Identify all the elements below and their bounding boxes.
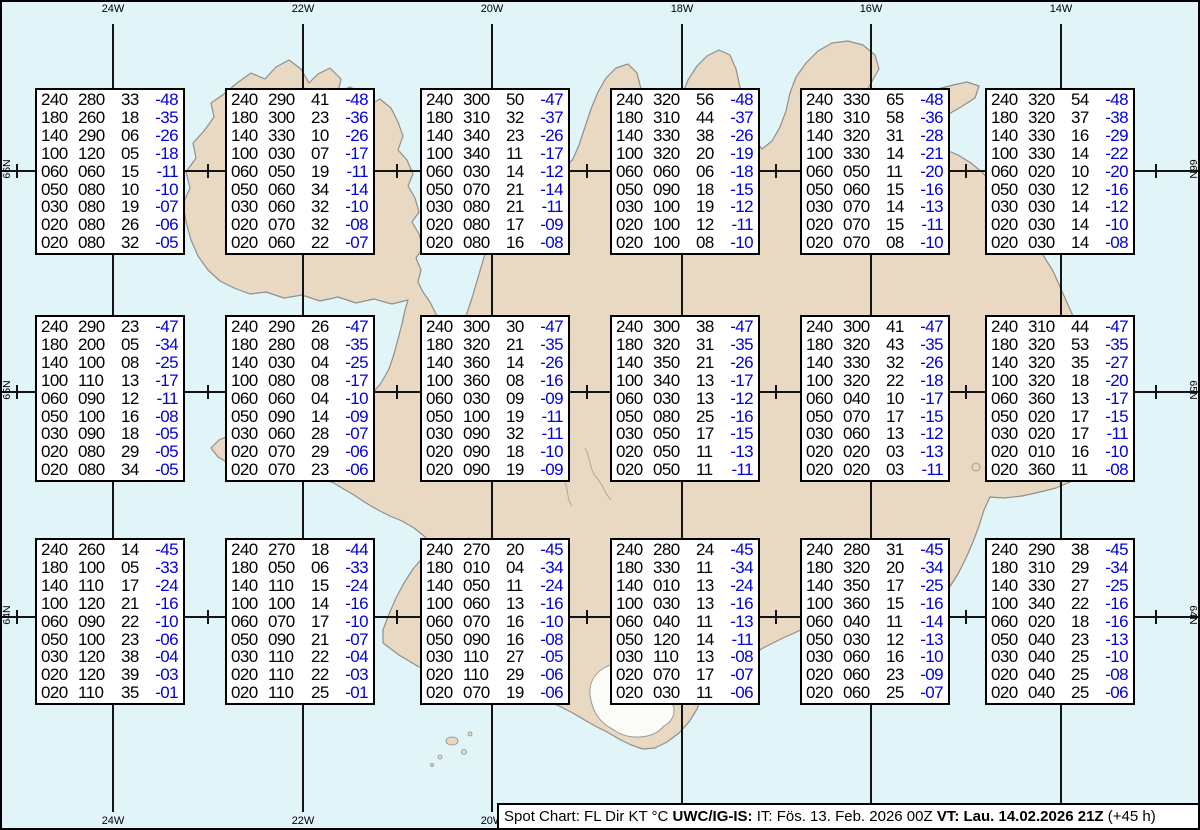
fl-value: 030 [616, 648, 653, 666]
dir-value: 300 [653, 318, 696, 336]
temp-value: -10 [151, 613, 183, 631]
kt-value: 11 [696, 613, 726, 631]
fl-value: 100 [991, 595, 1028, 613]
spot-data-row: 10010014-16 [231, 595, 373, 613]
temp-value: -25 [341, 354, 373, 372]
kt-value: 22 [311, 666, 341, 684]
spot-data-row: 05010023-06 [41, 631, 183, 649]
fl-value: 050 [231, 181, 268, 199]
spot-data-row: 06007016-10 [426, 613, 568, 631]
temp-value: -34 [916, 559, 948, 577]
spot-data-row: 02002003-13 [806, 443, 948, 461]
dir-value: 080 [78, 198, 121, 216]
fl-value: 100 [41, 145, 78, 163]
spot-data-row: 06006015-11 [41, 163, 183, 181]
fl-value: 180 [231, 336, 268, 354]
fl-value: 020 [616, 443, 653, 461]
dir-value: 100 [653, 234, 696, 252]
kt-value: 31 [886, 541, 916, 559]
temp-value: -16 [536, 372, 568, 390]
temp-value: -07 [726, 666, 758, 684]
temp-value: -09 [536, 216, 568, 234]
temp-value: -08 [1101, 234, 1133, 252]
kt-value: 05 [121, 559, 151, 577]
fl-value: 050 [806, 631, 843, 649]
temp-value: -08 [1101, 461, 1133, 479]
fl-value: 100 [991, 372, 1028, 390]
kt-value: 05 [121, 336, 151, 354]
temp-value: -11 [726, 631, 758, 649]
kt-value: 56 [696, 91, 726, 109]
dir-value: 090 [463, 443, 506, 461]
temp-value: -11 [151, 390, 183, 408]
dir-value: 100 [78, 354, 121, 372]
spot-data-row: 14036014-26 [426, 354, 568, 372]
kt-value: 14 [506, 163, 536, 181]
fl-value: 140 [806, 354, 843, 372]
fl-value: 020 [41, 216, 78, 234]
spot-data-row: 02011035-01 [41, 684, 183, 702]
fl-value: 020 [426, 216, 463, 234]
fl-value: 060 [991, 390, 1028, 408]
fl-value: 020 [806, 666, 843, 684]
dir-value: 100 [463, 408, 506, 426]
dir-value: 320 [1028, 109, 1071, 127]
kt-value: 21 [121, 595, 151, 613]
dir-value: 090 [268, 408, 311, 426]
latitude-label-right: 66N [1187, 156, 1199, 182]
fl-value: 050 [231, 408, 268, 426]
kt-value: 18 [1071, 372, 1101, 390]
fl-value: 240 [806, 91, 843, 109]
fl-value: 020 [231, 684, 268, 702]
spot-data-row: 02011022-03 [231, 666, 373, 684]
spot-data-row: 03006028-07 [231, 425, 373, 443]
temp-value: -11 [151, 163, 183, 181]
fl-value: 020 [991, 216, 1028, 234]
temp-value: -12 [1101, 198, 1133, 216]
kt-value: 29 [311, 443, 341, 461]
spot-data-row: 14003004-25 [231, 354, 373, 372]
dir-value: 020 [1028, 163, 1071, 181]
dir-value: 290 [78, 127, 121, 145]
temp-value: -10 [341, 198, 373, 216]
fl-value: 020 [41, 684, 78, 702]
temp-value: -08 [536, 631, 568, 649]
temp-value: -35 [151, 109, 183, 127]
spot-box: 24032054-4818032037-3814033016-291003301… [985, 88, 1135, 255]
spot-data-row: 03008021-11 [426, 198, 568, 216]
spot-data-row: 02005011-11 [616, 461, 758, 479]
fl-value: 020 [41, 666, 78, 684]
dir-value: 330 [1028, 145, 1071, 163]
kt-value: 15 [121, 163, 151, 181]
temp-value: -33 [341, 559, 373, 577]
spot-data-row: 18031032-37 [426, 109, 568, 127]
fl-value: 050 [991, 408, 1028, 426]
fl-value: 100 [426, 595, 463, 613]
spot-box: 24028031-4518032020-3414035017-251003601… [800, 538, 950, 705]
kt-value: 11 [1071, 461, 1101, 479]
spot-data-row: 02006023-09 [806, 666, 948, 684]
dir-value: 340 [463, 127, 506, 145]
spot-data-row: 18032037-38 [991, 109, 1133, 127]
spot-box: 24031044-4718032053-3514032035-271003201… [985, 315, 1135, 482]
temp-value: -13 [726, 443, 758, 461]
longitude-label-bottom: 24W [97, 815, 129, 827]
temp-value: -26 [151, 127, 183, 145]
temp-value: -06 [536, 666, 568, 684]
fl-value: 030 [231, 648, 268, 666]
spot-data-row: 18032021-35 [426, 336, 568, 354]
spot-data-row: 10036015-16 [806, 595, 948, 613]
temp-value: -20 [1101, 372, 1133, 390]
dir-value: 040 [1028, 666, 1071, 684]
dir-value: 110 [78, 684, 121, 702]
kt-value: 10 [1071, 163, 1101, 181]
fl-value: 020 [991, 684, 1028, 702]
dir-value: 320 [843, 372, 886, 390]
spot-data-row: 14033038-26 [616, 127, 758, 145]
latitude-label-right: 65N [1187, 377, 1199, 403]
spot-data-row: 14010008-25 [41, 354, 183, 372]
kt-value: 16 [506, 234, 536, 252]
kt-value: 25 [1071, 684, 1101, 702]
fl-value: 100 [41, 372, 78, 390]
temp-value: -17 [341, 372, 373, 390]
temp-value: -44 [341, 541, 373, 559]
dir-value: 060 [268, 181, 311, 199]
kt-value: 19 [506, 461, 536, 479]
temp-value: -11 [1101, 425, 1133, 443]
temp-value: -24 [726, 577, 758, 595]
spot-data-row: 24028031-45 [806, 541, 948, 559]
spot-data-row: 05006034-14 [231, 181, 373, 199]
fl-value: 240 [41, 318, 78, 336]
temp-value: -48 [916, 91, 948, 109]
temp-value: -09 [341, 408, 373, 426]
temp-value: -15 [916, 408, 948, 426]
dir-value: 020 [1028, 613, 1071, 631]
spot-data-row: 06005019-11 [231, 163, 373, 181]
dir-value: 090 [463, 461, 506, 479]
temp-value: -08 [536, 234, 568, 252]
fl-value: 030 [616, 425, 653, 443]
dir-value: 040 [843, 390, 886, 408]
fl-value: 050 [806, 181, 843, 199]
spot-data-row: 02003011-06 [616, 684, 758, 702]
kt-value: 22 [311, 234, 341, 252]
spot-data-row: 14033032-26 [806, 354, 948, 372]
kt-value: 18 [311, 541, 341, 559]
spot-data-row: 02009018-10 [426, 443, 568, 461]
kt-value: 07 [311, 145, 341, 163]
spot-data-row: 05004023-13 [991, 631, 1133, 649]
dir-value: 290 [78, 318, 121, 336]
spot-data-row: 02009019-09 [426, 461, 568, 479]
spot-data-row: 06002010-20 [991, 163, 1133, 181]
temp-value: -04 [341, 648, 373, 666]
fl-value: 060 [231, 163, 268, 181]
fl-value: 020 [41, 234, 78, 252]
temp-value: -11 [726, 461, 758, 479]
spot-data-row: 06003013-12 [616, 390, 758, 408]
spot-data-row: 02008026-06 [41, 216, 183, 234]
fl-value: 020 [616, 216, 653, 234]
temp-value: -37 [726, 109, 758, 127]
kt-value: 25 [1071, 648, 1101, 666]
temp-value: -08 [151, 408, 183, 426]
kt-value: 11 [506, 145, 536, 163]
dir-value: 050 [653, 443, 696, 461]
dir-value: 060 [843, 425, 886, 443]
fl-value: 060 [806, 390, 843, 408]
fl-value: 180 [426, 336, 463, 354]
spot-data-row: 18028008-35 [231, 336, 373, 354]
spot-data-row: 03005017-15 [616, 425, 758, 443]
fl-value: 050 [41, 631, 78, 649]
dir-value: 110 [268, 648, 311, 666]
fl-value: 140 [616, 127, 653, 145]
dir-value: 340 [463, 145, 506, 163]
kt-value: 20 [506, 541, 536, 559]
dir-value: 270 [268, 541, 311, 559]
spot-data-row: 03009032-11 [426, 425, 568, 443]
temp-value: -15 [726, 181, 758, 199]
temp-value: -10 [1101, 443, 1133, 461]
kt-value: 11 [886, 163, 916, 181]
dir-value: 330 [653, 127, 696, 145]
fl-value: 050 [231, 631, 268, 649]
fl-value: 180 [991, 109, 1028, 127]
dir-value: 120 [78, 595, 121, 613]
kt-value: 11 [886, 613, 916, 631]
dir-value: 300 [268, 109, 311, 127]
spot-data-row: 10003007-17 [231, 145, 373, 163]
temp-value: -24 [341, 577, 373, 595]
kt-value: 20 [696, 145, 726, 163]
spot-data-row: 03006016-10 [806, 648, 948, 666]
fl-value: 020 [806, 461, 843, 479]
fl-value: 060 [991, 163, 1028, 181]
dir-value: 070 [463, 613, 506, 631]
dir-value: 050 [463, 577, 506, 595]
dir-value: 110 [268, 684, 311, 702]
dir-value: 120 [78, 145, 121, 163]
spot-data-row: 02012039-03 [41, 666, 183, 684]
spot-data-row: 24027018-44 [231, 541, 373, 559]
dir-value: 310 [1028, 559, 1071, 577]
fl-value: 100 [231, 372, 268, 390]
dir-value: 030 [1028, 216, 1071, 234]
spot-data-row: 24027020-45 [426, 541, 568, 559]
latitude-label-left: 64N [1, 602, 13, 628]
fl-value: 020 [806, 234, 843, 252]
temp-value: -13 [916, 443, 948, 461]
temp-value: -27 [1101, 354, 1133, 372]
kt-value: 39 [121, 666, 151, 684]
spot-data-row: 03011027-05 [426, 648, 568, 666]
kt-value: 11 [696, 559, 726, 577]
spot-data-row: 02006025-07 [806, 684, 948, 702]
fl-value: 240 [991, 318, 1028, 336]
kt-value: 11 [696, 461, 726, 479]
fl-value: 050 [616, 181, 653, 199]
spot-data-row: 02007032-08 [231, 216, 373, 234]
fl-value: 180 [991, 336, 1028, 354]
kt-value: 03 [886, 443, 916, 461]
spot-data-row: 10006013-16 [426, 595, 568, 613]
fl-value: 100 [41, 595, 78, 613]
kt-value: 17 [696, 425, 726, 443]
temp-value: -17 [1101, 390, 1133, 408]
spot-data-row: 18005006-33 [231, 559, 373, 577]
spot-data-row: 10012021-16 [41, 595, 183, 613]
fl-value: 100 [426, 372, 463, 390]
temp-value: -26 [536, 354, 568, 372]
kt-value: 22 [121, 613, 151, 631]
kt-value: 18 [1071, 613, 1101, 631]
kt-value: 33 [121, 91, 151, 109]
temp-value: -47 [536, 318, 568, 336]
kt-value: 19 [696, 198, 726, 216]
kt-value: 14 [311, 408, 341, 426]
fl-value: 100 [991, 145, 1028, 163]
kt-value: 13 [506, 595, 536, 613]
temp-value: -08 [726, 648, 758, 666]
dir-value: 090 [78, 390, 121, 408]
spot-data-row: 06004011-14 [806, 613, 948, 631]
temp-value: -48 [151, 91, 183, 109]
spot-data-row: 02001016-10 [991, 443, 1133, 461]
dir-value: 060 [268, 425, 311, 443]
dir-value: 320 [653, 336, 696, 354]
kt-value: 25 [311, 684, 341, 702]
temp-value: -47 [341, 318, 373, 336]
dir-value: 100 [78, 559, 121, 577]
kt-value: 37 [1071, 109, 1101, 127]
kt-value: 41 [886, 318, 916, 336]
spot-data-row: 18010005-33 [41, 559, 183, 577]
kt-value: 29 [121, 443, 151, 461]
spot-data-row: 10003013-16 [616, 595, 758, 613]
fl-value: 020 [231, 666, 268, 684]
temp-value: -35 [536, 336, 568, 354]
temp-value: -47 [916, 318, 948, 336]
kt-value: 38 [696, 127, 726, 145]
kt-value: 13 [696, 577, 726, 595]
fl-value: 180 [616, 336, 653, 354]
spot-data-row: 14001013-24 [616, 577, 758, 595]
spot-box: 24032056-4818031044-3714033038-261003202… [610, 88, 760, 255]
kt-value: 34 [121, 461, 151, 479]
spot-data-row: 06009022-10 [41, 613, 183, 631]
kt-value: 13 [696, 390, 726, 408]
temp-value: -10 [916, 234, 948, 252]
spot-box: 24029038-4518031029-3414033027-251003402… [985, 538, 1135, 705]
fl-value: 180 [806, 336, 843, 354]
fl-value: 060 [41, 163, 78, 181]
fl-value: 240 [426, 318, 463, 336]
kt-value: 06 [121, 127, 151, 145]
dir-value: 280 [653, 541, 696, 559]
fl-value: 140 [616, 577, 653, 595]
spot-data-row: 24026014-45 [41, 541, 183, 559]
kt-value: 13 [121, 372, 151, 390]
fl-value: 060 [806, 613, 843, 631]
kt-value: 13 [696, 648, 726, 666]
dir-value: 350 [843, 577, 886, 595]
dir-value: 090 [268, 631, 311, 649]
temp-value: -35 [1101, 336, 1133, 354]
fl-value: 060 [616, 613, 653, 631]
spot-data-row: 03002017-11 [991, 425, 1133, 443]
fl-value: 100 [616, 595, 653, 613]
status-segment-bold: UWC/IG-IS: [673, 808, 753, 825]
spot-data-row: 03006013-12 [806, 425, 948, 443]
spot-data-row: 18032053-35 [991, 336, 1133, 354]
temp-value: -05 [151, 443, 183, 461]
kt-value: 18 [506, 443, 536, 461]
kt-value: 08 [886, 234, 916, 252]
kt-value: 44 [696, 109, 726, 127]
dir-value: 020 [843, 461, 886, 479]
dir-value: 080 [78, 216, 121, 234]
temp-value: -07 [341, 234, 373, 252]
kt-value: 22 [1071, 595, 1101, 613]
dir-value: 110 [268, 577, 311, 595]
fl-value: 140 [231, 577, 268, 595]
fl-value: 100 [616, 145, 653, 163]
dir-value: 030 [653, 390, 696, 408]
temp-value: -16 [1101, 181, 1133, 199]
dir-value: 070 [843, 408, 886, 426]
spot-data-row: 10033014-22 [991, 145, 1133, 163]
temp-value: -11 [916, 216, 948, 234]
spot-data-row: 24030050-47 [426, 91, 568, 109]
spot-data-row: 06006006-18 [616, 163, 758, 181]
kt-value: 20 [886, 559, 916, 577]
kt-value: 30 [506, 318, 536, 336]
temp-value: -10 [916, 648, 948, 666]
fl-value: 030 [41, 425, 78, 443]
dir-value: 260 [78, 541, 121, 559]
spot-data-row: 18030023-36 [231, 109, 373, 127]
kt-value: 10 [311, 127, 341, 145]
kt-value: 13 [696, 372, 726, 390]
temp-value: -11 [536, 198, 568, 216]
dir-value: 310 [843, 109, 886, 127]
dir-value: 070 [843, 216, 886, 234]
spot-data-row: 02004025-08 [991, 666, 1133, 684]
spot-data-row: 10008008-17 [231, 372, 373, 390]
dir-value: 040 [1028, 684, 1071, 702]
spot-data-row: 03010019-12 [616, 198, 758, 216]
dir-value: 060 [268, 234, 311, 252]
dir-value: 320 [463, 336, 506, 354]
temp-value: -13 [916, 631, 948, 649]
fl-value: 240 [426, 541, 463, 559]
spot-data-row: 14032031-28 [806, 127, 948, 145]
fl-value: 050 [616, 631, 653, 649]
dir-value: 020 [1028, 408, 1071, 426]
kt-value: 15 [886, 595, 916, 613]
dir-value: 360 [463, 354, 506, 372]
kt-value: 44 [1071, 318, 1101, 336]
fl-value: 240 [231, 541, 268, 559]
spot-data-row: 14011015-24 [231, 577, 373, 595]
temp-value: -36 [916, 109, 948, 127]
